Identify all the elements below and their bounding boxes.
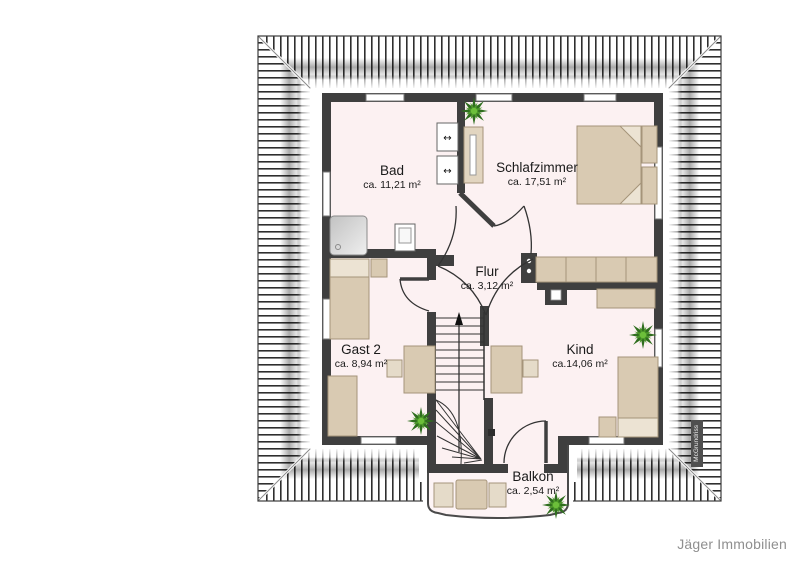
window-gast2-left [323, 299, 330, 339]
desk [404, 346, 435, 393]
left-right-arrow-icon: ↔ [443, 166, 451, 177]
chair [434, 483, 453, 507]
floor-plan-drawing: ↔ ↔ [0, 0, 800, 565]
plant-icon [629, 321, 657, 349]
desk [491, 346, 522, 393]
watermark-tag: McGrundriss [691, 420, 703, 467]
nightstand [642, 126, 657, 163]
single-bed [330, 277, 369, 339]
left-right-arrow-icon: ↔ [443, 133, 451, 144]
plant-icon [460, 97, 488, 125]
radiator-slot [470, 135, 476, 175]
door-hinge-dot [527, 269, 531, 273]
plant-icon [407, 407, 435, 435]
window-bad-left [323, 172, 330, 216]
nightstand [371, 259, 387, 277]
chair [523, 360, 538, 377]
wall-dormer-right [558, 436, 567, 473]
floor-plan-page: ↔ ↔ Bad [0, 0, 800, 565]
chair [489, 483, 506, 507]
window-schlafzimmer-top-2 [584, 94, 616, 101]
nightstand [642, 167, 657, 204]
watermark-text: McGrundriss [691, 425, 703, 462]
company-name: Jäger Immobilien [677, 536, 787, 552]
window-kind-bottom [589, 437, 624, 444]
balcony-table [456, 480, 487, 509]
wardrobe [328, 376, 357, 436]
wall-gast2-door-post [427, 249, 436, 280]
bed-pillow [618, 418, 658, 437]
window-gast2-bottom [361, 437, 396, 444]
plant-icon [542, 491, 570, 519]
toilet-lid [399, 228, 411, 243]
chair [387, 360, 402, 377]
wall-schlafzimmer-door-post [521, 253, 537, 283]
wall-dormer-bottom-left [427, 464, 508, 473]
stair-post [488, 429, 495, 436]
roof-shadow-top [258, 36, 721, 88]
roof-shadow-left [258, 36, 310, 501]
bed-pillow [330, 259, 369, 277]
chimney-flue [551, 290, 561, 300]
single-bed [618, 357, 658, 418]
nightstand [599, 417, 616, 437]
window-schlafzimmer-top-1 [476, 94, 512, 101]
sideboard [597, 289, 655, 308]
shower [330, 216, 367, 255]
window-bad-top [366, 94, 404, 101]
